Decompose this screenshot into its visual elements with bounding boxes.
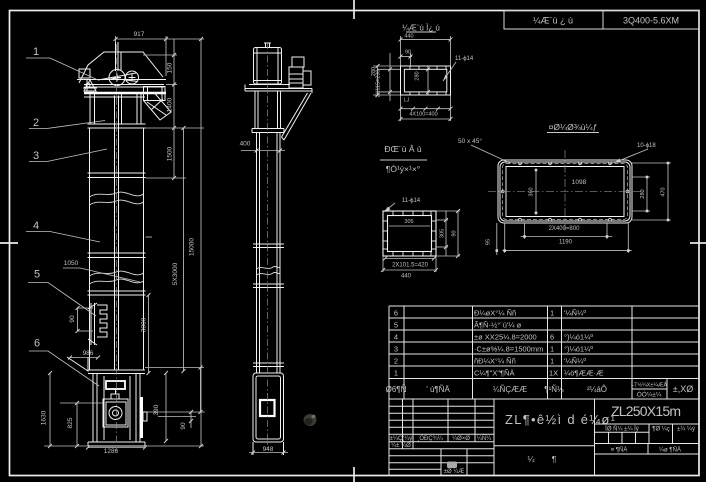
svg-text:360: 360 xyxy=(529,187,535,196)
svg-text:2: 2 xyxy=(394,357,398,366)
svg-text:90: 90 xyxy=(452,230,458,236)
svg-text:986: 986 xyxy=(83,350,94,357)
svg-text:≡ ¶ÑÄ: ≡ ¶ÑÄ xyxy=(611,447,628,454)
svg-text:¼Ø×Ø: ¼Ø×Ø xyxy=(452,436,470,442)
svg-text:'¼Ñ¼º: '¼Ñ¼º xyxy=(564,309,586,318)
svg-text:305: 305 xyxy=(440,229,446,238)
svg-text:11-ϕ14: 11-ϕ14 xyxy=(455,56,474,62)
svg-text:280: 280 xyxy=(415,71,421,80)
svg-text:5: 5 xyxy=(34,269,40,281)
svg-text:2X115=230: 2X115=230 xyxy=(376,70,382,98)
svg-text:¼ÑÇÆÆ: ¼ÑÇÆÆ xyxy=(493,385,527,394)
svg-text:¼ø ¶ÑÄ: ¼ø ¶ÑÄ xyxy=(659,447,681,454)
svg-text:90: 90 xyxy=(180,422,187,430)
svg-text:5: 5 xyxy=(394,321,398,330)
svg-text:²¼áÔ: ²¼áÔ xyxy=(587,385,607,394)
svg-text:ZL250X15m: ZL250X15m xyxy=(611,403,681,419)
svg-text:¶: ¶ xyxy=(552,454,557,464)
svg-text:390: 390 xyxy=(153,404,160,415)
svg-text:4X100=400: 4X100=400 xyxy=(409,112,437,118)
svg-text:1: 1 xyxy=(33,46,39,58)
svg-text:¼ö¶ÆÆ·Æ: ¼ö¶ÆÆ·Æ xyxy=(564,369,604,378)
svg-text:LJ: LJ xyxy=(404,98,410,104)
svg-text:Ø6¶Ñ: Ø6¶Ñ xyxy=(386,385,407,394)
svg-text:±¼ ¼ý: ±¼ ¼ý xyxy=(677,427,695,433)
svg-text:280: 280 xyxy=(640,189,646,198)
svg-text:·C±ø%¼.8=1500mm: ·C±ø%¼.8=1500mm xyxy=(474,345,543,354)
svg-text:¸ÕÐÇ¾¼: ¸ÕÐÇ¾¼ xyxy=(417,435,443,442)
svg-text:¼: ¼ xyxy=(527,454,535,464)
svg-text:C¼¶"X"¶ÑÄ: C¼¶"X"¶ÑÄ xyxy=(474,369,514,378)
svg-text:¼Æ¨ú Ì¿ ú: ¼Æ¨ú Ì¿ ú xyxy=(402,24,440,33)
svg-text:95: 95 xyxy=(486,239,492,245)
svg-text:1: 1 xyxy=(550,345,554,354)
svg-text:' ú¶ÑÄ: ' ú¶ÑÄ xyxy=(426,385,450,394)
svg-text:4: 4 xyxy=(394,333,398,342)
svg-text:ÓÓ¼±¼: ÓÓ¼±¼ xyxy=(637,390,662,399)
svg-text:3000: 3000 xyxy=(141,317,148,332)
svg-text:2X101.5=420: 2X101.5=420 xyxy=(392,263,429,269)
svg-text:±Ø ¼Æ: ±Ø ¼Æ xyxy=(444,469,465,475)
svg-text:6: 6 xyxy=(394,309,398,318)
svg-text:4: 4 xyxy=(33,220,39,232)
svg-text:90: 90 xyxy=(69,315,76,323)
svg-text:948: 948 xyxy=(263,446,274,453)
svg-text:ñÐ¼X°¼ Ññ: ñÐ¼X°¼ Ññ xyxy=(474,357,516,366)
svg-text:15000: 15000 xyxy=(189,238,196,256)
svg-text:°)¼ó1¼º: °)¼ó1¼º xyxy=(564,345,593,354)
svg-text:10-ϕ18: 10-ϕ18 xyxy=(637,143,656,149)
svg-text:±,XØ: ±,XØ xyxy=(673,384,693,394)
svg-text:¶Ò¹ý×¹×°: ¶Ò¹ý×¹×° xyxy=(386,164,420,174)
svg-text:6: 6 xyxy=(34,338,40,350)
svg-text:1630: 1630 xyxy=(41,410,48,425)
svg-text:¼Ñ¼: ¼Ñ¼ xyxy=(477,435,492,442)
svg-text:Ã¶Ñ·½°¨ú'¼ ø: Ã¶Ñ·½°¨ú'¼ ø xyxy=(474,321,522,330)
svg-text:¼Æ¨ù ¿ ú: ¼Æ¨ù ¿ ú xyxy=(533,16,573,26)
svg-text:150: 150 xyxy=(167,62,174,73)
svg-text:°)¼ó1¼º: °)¼ó1¼º xyxy=(564,333,593,342)
svg-text:ÐŒ¨ù Â ú: ÐŒ¨ù Â ú xyxy=(384,144,422,154)
svg-text:±ø XX25¼.8=2000: ±ø XX25¼.8=2000 xyxy=(474,333,537,342)
svg-text:50 x 45°: 50 x 45° xyxy=(458,137,482,145)
svg-text:1050: 1050 xyxy=(64,260,79,267)
svg-text:Ð¼øX°¼ Ññ: Ð¼øX°¼ Ññ xyxy=(474,309,516,318)
svg-text:1X: 1X xyxy=(549,369,558,378)
svg-text:825: 825 xyxy=(67,417,74,428)
svg-text:1190: 1190 xyxy=(559,240,573,246)
svg-text:5X3000: 5X3000 xyxy=(172,262,179,285)
svg-text:917: 917 xyxy=(134,31,145,38)
svg-text:470: 470 xyxy=(661,187,667,196)
svg-text:11-ϕ14: 11-ϕ14 xyxy=(402,198,421,204)
svg-text:¶Ø ¼ç: ¶Ø ¼ç xyxy=(652,427,670,433)
svg-text:6: 6 xyxy=(550,333,554,342)
svg-text:1: 1 xyxy=(550,309,554,318)
svg-text:1098: 1098 xyxy=(572,179,587,186)
svg-text:1: 1 xyxy=(394,369,398,378)
svg-text:±¼Ç(¼ý: ±¼Ç(¼ý xyxy=(390,436,413,442)
svg-text:1: 1 xyxy=(550,357,554,366)
svg-text:440: 440 xyxy=(401,274,412,280)
svg-text:3: 3 xyxy=(33,150,39,162)
svg-text:¦-T½¼X±¼ÆÅ: ¦-T½¼X±¼ÆÅ xyxy=(631,382,668,389)
svg-text:ÏØ Ñ¼ ±¼ Ïý: ÏØ Ñ¼ ±¼ Ïý xyxy=(605,426,639,433)
svg-text:400: 400 xyxy=(240,141,251,148)
svg-text:¼± ¼Ø: ¼± ¼Ø xyxy=(391,443,411,449)
svg-text:2: 2 xyxy=(33,117,39,129)
svg-text:2X400=800: 2X400=800 xyxy=(549,226,581,232)
svg-text:3: 3 xyxy=(394,345,398,354)
svg-text:¤Ø¼Ø¾ù¼ƒ: ¤Ø¼Ø¾ù¼ƒ xyxy=(549,122,598,132)
svg-text:1500: 1500 xyxy=(167,146,174,161)
svg-text:'¼Ñ¼º: '¼Ñ¼º xyxy=(564,357,586,366)
svg-text:¶¹Ñ¼: ¶¹Ñ¼ xyxy=(544,385,564,394)
svg-text:3Q400-5.6XM: 3Q400-5.6XM xyxy=(623,16,679,26)
svg-text:305: 305 xyxy=(404,219,413,225)
svg-text:1400: 1400 xyxy=(167,97,174,112)
svg-text:440: 440 xyxy=(404,34,413,40)
